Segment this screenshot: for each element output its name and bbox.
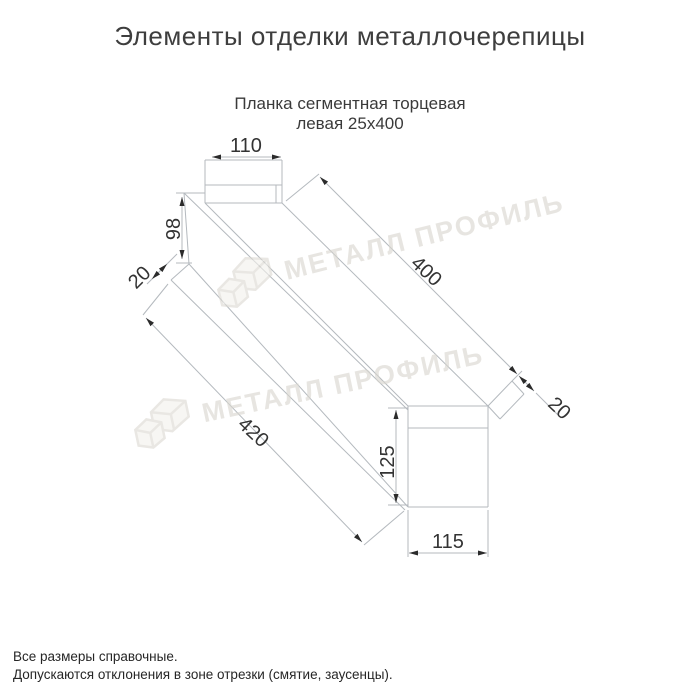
dimension-annotations: 110 98 20 400 20 420 125 115: [124, 135, 575, 557]
footer-note-line2: Допускаются отклонения в зоне отрезки (с…: [13, 666, 393, 684]
dim-400-label: 400: [406, 252, 445, 291]
edge-top-back: [282, 203, 488, 406]
edge-top-front: [205, 203, 408, 406]
edge-face-top: [184, 193, 408, 410]
dim-420-label: 420: [233, 413, 272, 452]
right-hem-a: [488, 381, 512, 406]
dim-20-right-line: [519, 376, 534, 391]
dim-125-label: 125: [377, 445, 399, 478]
dim-400-ext-b: [512, 371, 522, 381]
dim-20-right-label: 20: [543, 393, 574, 424]
technical-drawing: 110 98 20 400 20 420 125 115: [0, 0, 700, 700]
footer-notes: Все размеры справочные. Допускаются откл…: [13, 648, 393, 684]
right-hem-c: [500, 394, 524, 419]
right-hem-d: [488, 406, 500, 419]
dim-20-left-label: 20: [124, 262, 155, 293]
edge-hem-bottom: [171, 280, 405, 510]
strip-outline: [171, 160, 524, 510]
left-hem-edge: [171, 264, 189, 280]
dim-98-label: 98: [163, 218, 185, 240]
right-hem-b: [512, 381, 524, 394]
dim-420-ext-b: [364, 511, 404, 545]
dim-420-ext-a: [143, 284, 168, 315]
dim-400-ext-a: [286, 174, 319, 201]
dim-110-label: 110: [230, 135, 262, 157]
edge-face-bottom: [189, 264, 408, 507]
footer-note-line1: Все размеры справочные.: [13, 648, 393, 666]
dim-115-label: 115: [432, 531, 464, 553]
